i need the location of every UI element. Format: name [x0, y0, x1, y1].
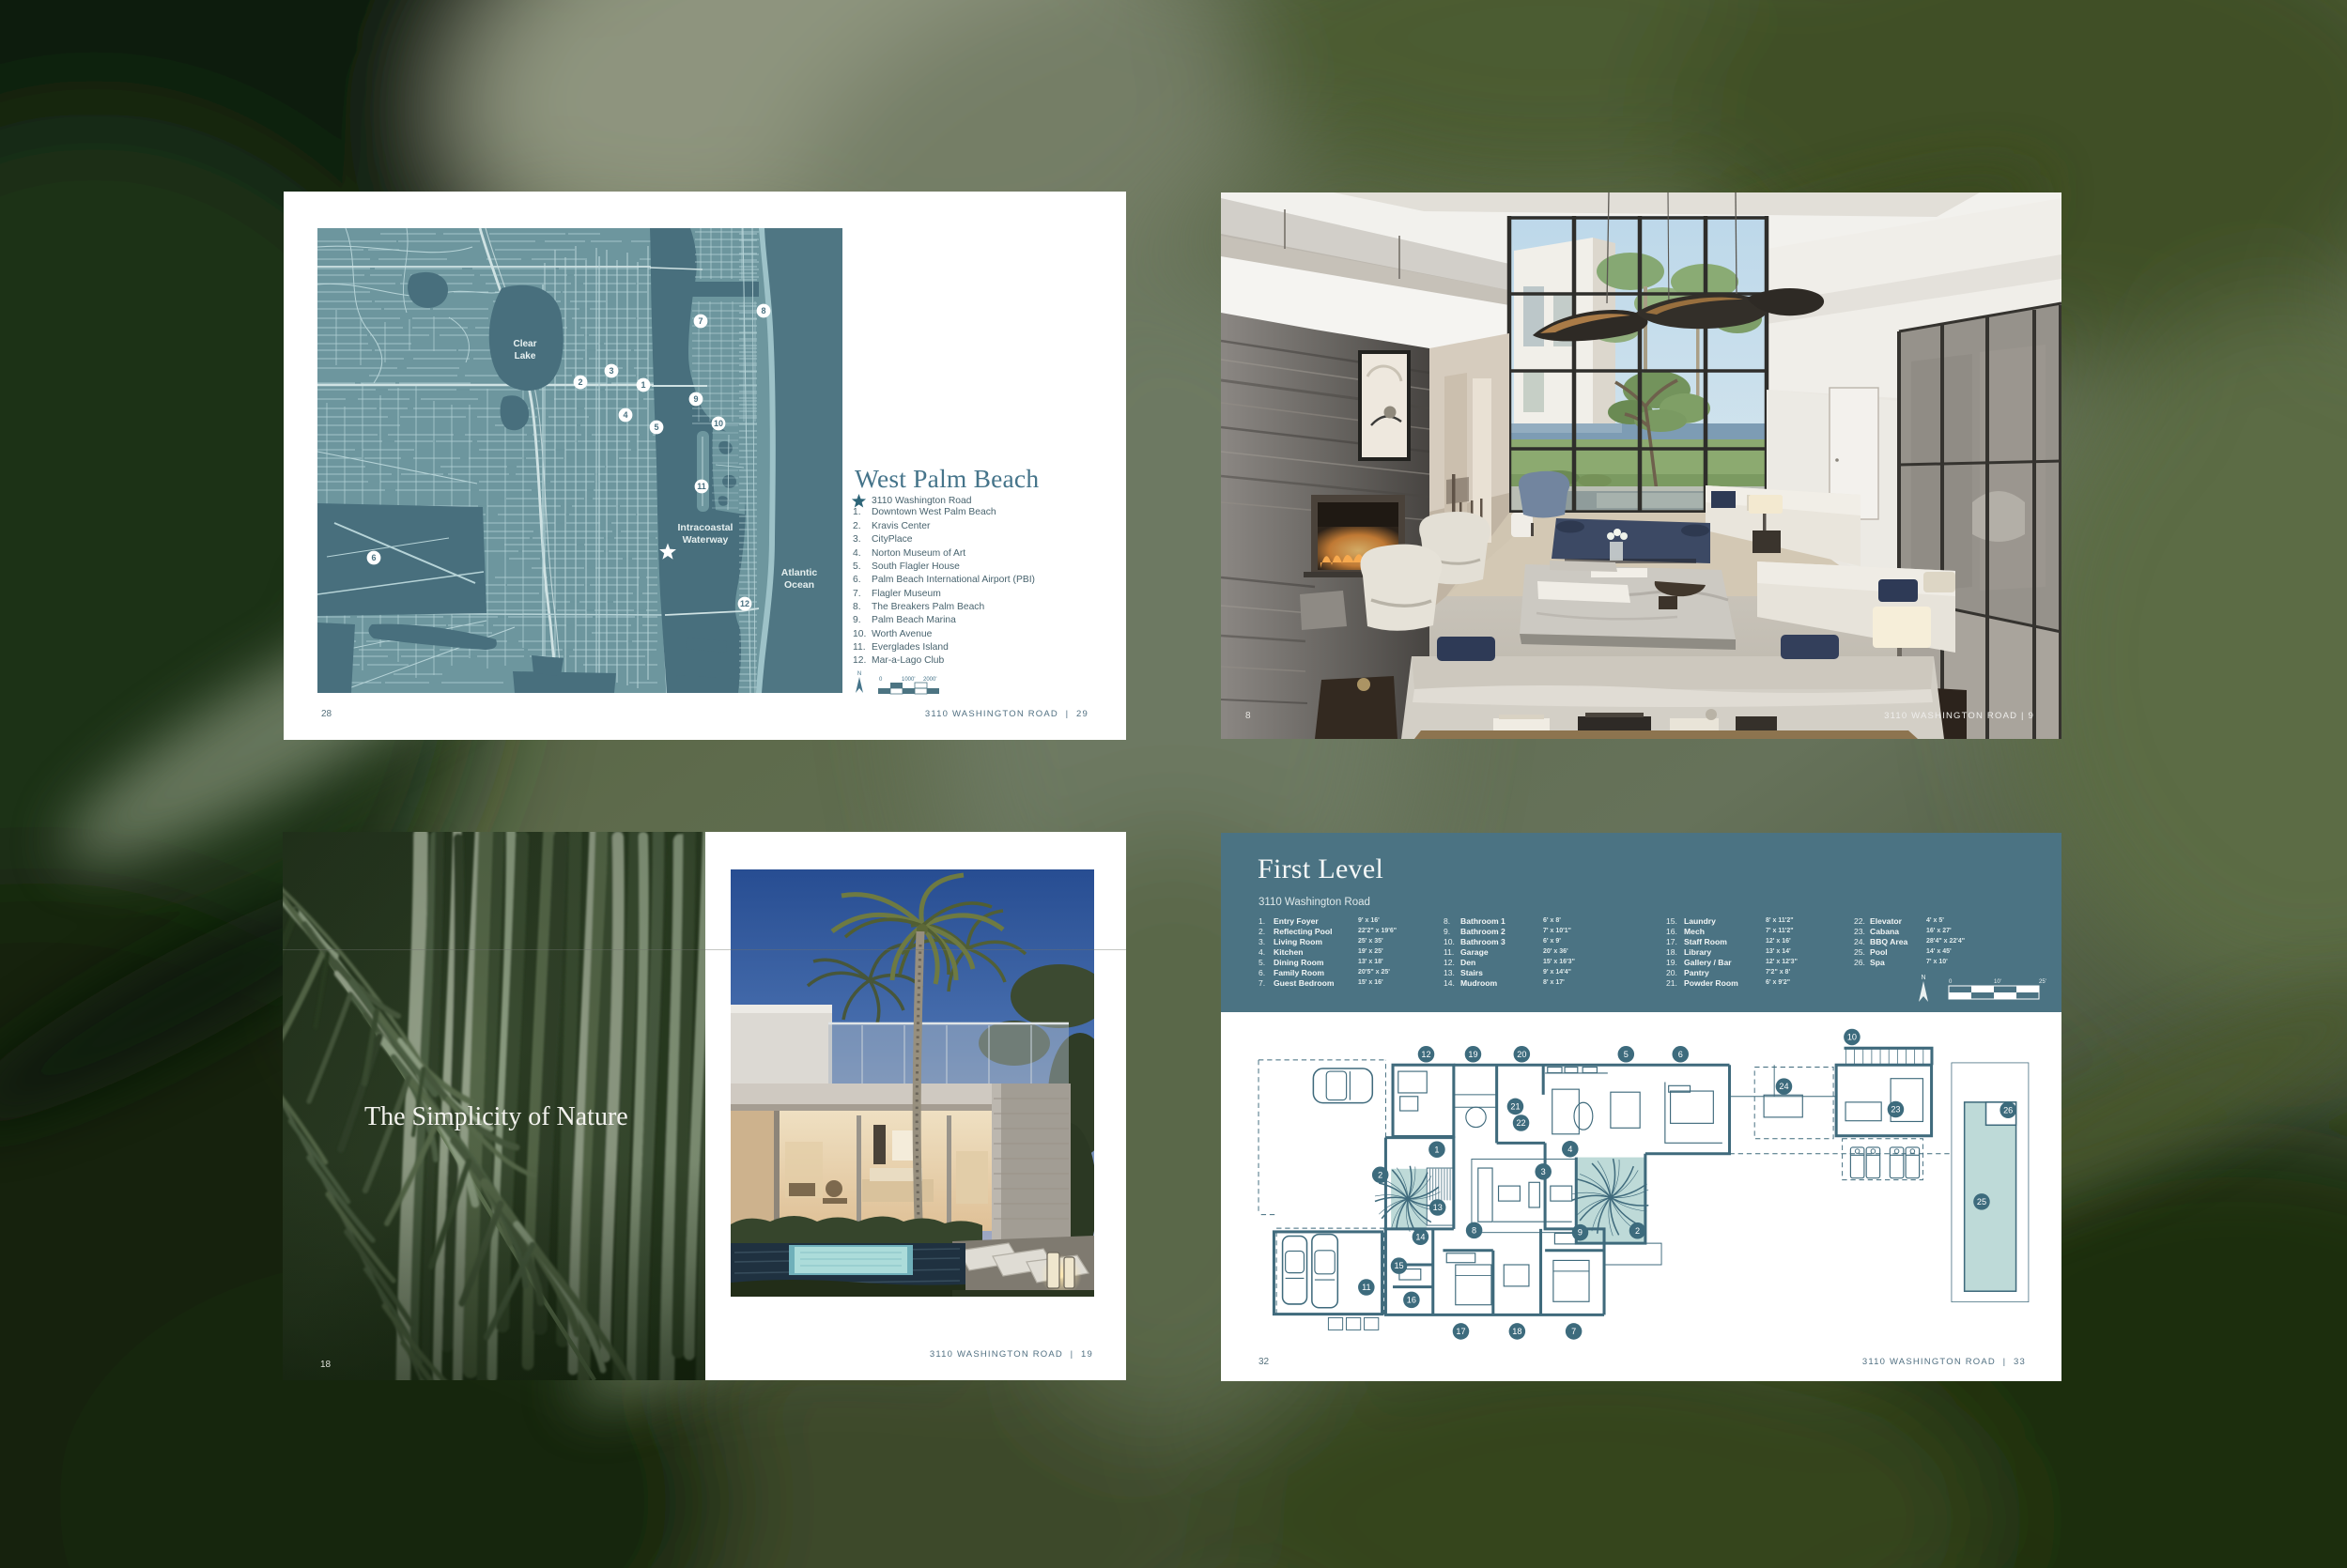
svg-text:Intracoastal: Intracoastal [678, 522, 733, 533]
svg-text:1000': 1000' [902, 677, 916, 683]
svg-text:Clear: Clear [513, 339, 536, 349]
svg-text:2000': 2000' [923, 677, 937, 683]
svg-text:10': 10' [1994, 979, 2001, 985]
svg-text:10: 10 [714, 419, 723, 428]
svg-text:25': 25' [2039, 979, 2046, 985]
svg-text:7: 7 [1571, 1327, 1576, 1336]
svg-text:12: 12 [740, 599, 749, 608]
svg-text:11: 11 [1362, 1283, 1371, 1292]
svg-text:Lake: Lake [515, 351, 536, 361]
svg-text:13: 13 [1433, 1203, 1443, 1212]
svg-text:18: 18 [320, 1360, 332, 1370]
svg-text:12: 12 [1421, 1050, 1430, 1059]
svg-text:9: 9 [1578, 1228, 1583, 1237]
svg-text:5: 5 [654, 423, 658, 432]
svg-text:5: 5 [1624, 1050, 1629, 1059]
svg-text:25: 25 [1977, 1197, 1986, 1207]
svg-text:3: 3 [1541, 1167, 1546, 1176]
svg-text:18: 18 [1512, 1327, 1521, 1336]
svg-text:17: 17 [1456, 1327, 1465, 1336]
svg-text:8: 8 [1245, 711, 1251, 721]
svg-text:24: 24 [1779, 1082, 1788, 1091]
svg-text:23: 23 [1891, 1105, 1900, 1115]
svg-text:4: 4 [1567, 1145, 1572, 1154]
svg-text:0: 0 [879, 677, 883, 683]
svg-text:Waterway: Waterway [683, 534, 729, 546]
svg-text:Ocean: Ocean [784, 579, 814, 591]
svg-text:8: 8 [761, 306, 765, 315]
svg-text:9: 9 [693, 394, 698, 404]
svg-text:8: 8 [1472, 1225, 1476, 1235]
svg-text:Atlantic: Atlantic [781, 567, 818, 578]
svg-text:22: 22 [1516, 1118, 1525, 1128]
svg-text:16: 16 [1407, 1295, 1416, 1304]
svg-text:2: 2 [578, 377, 582, 387]
svg-text:20: 20 [1517, 1050, 1526, 1059]
svg-text:1: 1 [641, 380, 645, 390]
svg-text:15: 15 [1394, 1261, 1403, 1270]
svg-text:11: 11 [697, 482, 706, 491]
svg-text:3: 3 [609, 366, 613, 376]
svg-text:6: 6 [371, 553, 376, 562]
svg-text:6: 6 [1678, 1050, 1683, 1059]
svg-text:N: N [1921, 975, 1925, 981]
svg-text:2: 2 [1635, 1226, 1640, 1236]
svg-text:19: 19 [1468, 1050, 1477, 1059]
svg-text:21: 21 [1510, 1102, 1520, 1112]
svg-text:10: 10 [1847, 1033, 1857, 1042]
svg-text:2: 2 [1378, 1170, 1382, 1179]
svg-text:4: 4 [623, 410, 627, 420]
svg-text:14: 14 [1415, 1232, 1425, 1241]
svg-text:0: 0 [1949, 979, 1953, 985]
svg-text:The Simplicity of Nature: The Simplicity of Nature [364, 1102, 628, 1131]
svg-text:26: 26 [2003, 1105, 2013, 1115]
svg-text:3110 WASHINGTON ROAD | 9: 3110 WASHINGTON ROAD | 9 [1884, 711, 2034, 721]
svg-text:N: N [857, 671, 861, 677]
svg-text:1: 1 [1434, 1145, 1439, 1154]
svg-text:7: 7 [698, 316, 703, 326]
